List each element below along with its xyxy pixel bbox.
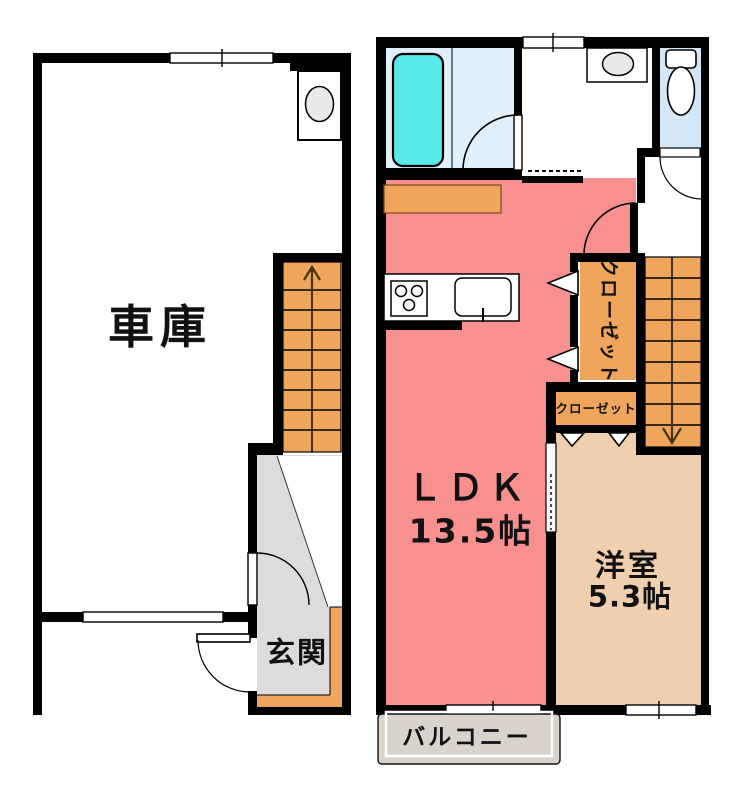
room-label-ldk: ＬＤＫ (406, 471, 529, 507)
room-size-western-room: 5.3帖 (588, 583, 672, 612)
garage-window-bottom (83, 612, 223, 622)
washing-machine-pan (298, 71, 341, 140)
toilet-door (660, 148, 702, 199)
floor-plan: 車庫 玄関 ＬＤＫ 13.5帖 洋室 5.3帖 クローゼット クローゼット バル… (0, 0, 742, 800)
room-label-entrance: 玄関 (266, 639, 328, 668)
washbasin-bowl-icon (603, 53, 634, 76)
kitchen-counter (384, 274, 519, 322)
toilet (666, 50, 696, 115)
staircase-1f (283, 262, 341, 452)
room-label-closet-large: クローゼット (599, 258, 618, 384)
room-label-garage: 車庫 (108, 304, 212, 350)
counter-shelf (384, 185, 501, 213)
washbasin (587, 48, 647, 82)
room-label-western-room: 洋室 (595, 552, 661, 582)
washroom-window (523, 33, 584, 52)
room-size-ldk: 13.5帖 (409, 515, 533, 548)
garage-window-top (170, 49, 273, 67)
washing-machine-icon (306, 87, 334, 122)
room-label-closet-small: クローゼット (555, 403, 636, 416)
bathtub (393, 54, 443, 166)
staircase-2f (645, 257, 701, 447)
western-room-sliding-door (546, 443, 556, 532)
front-door (197, 634, 250, 692)
room-label-balcony: バルコニー (402, 727, 532, 750)
stove-icon (391, 281, 427, 316)
kitchen-sink-icon (455, 278, 511, 322)
